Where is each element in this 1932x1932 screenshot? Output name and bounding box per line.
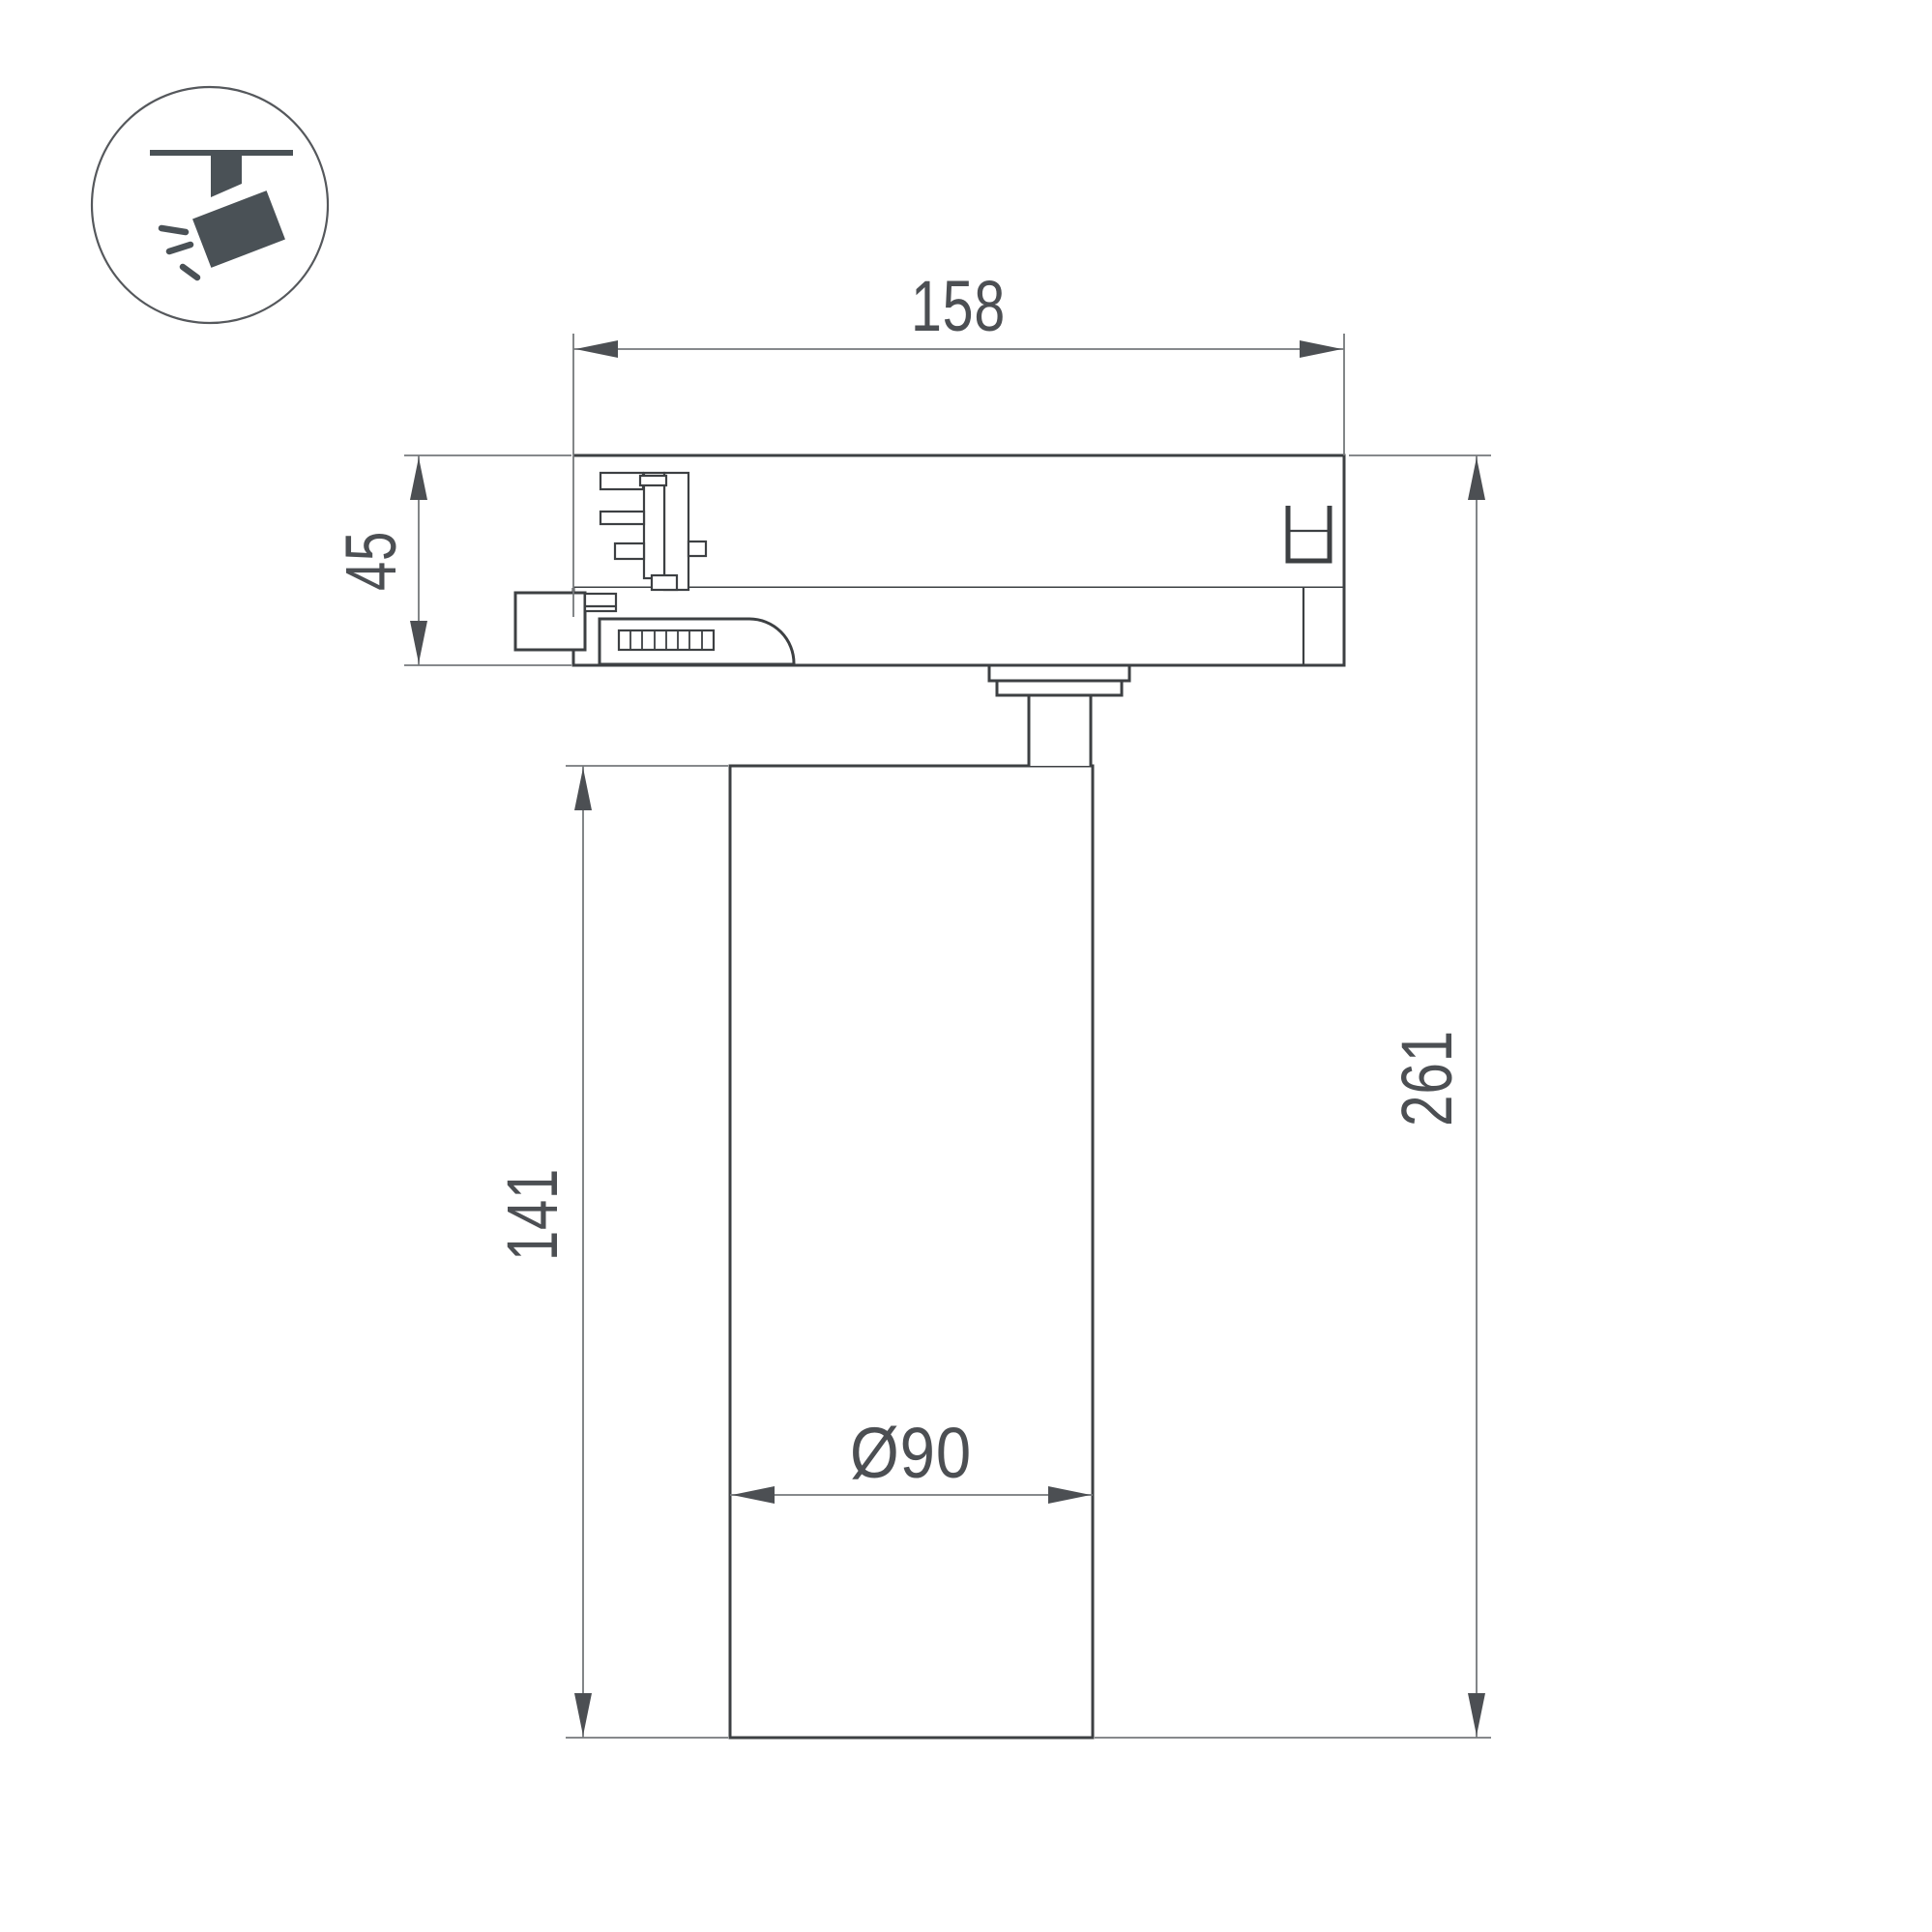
swivel-stem (1029, 695, 1091, 766)
dimension-total-height: 261 (1349, 455, 1491, 1738)
dimension-label-total-height: 261 (1387, 1030, 1467, 1127)
arrow-up-icon (1468, 457, 1485, 500)
arrow-right-icon (1300, 340, 1342, 358)
arrow-down-icon (410, 621, 427, 663)
arrow-left-icon (575, 340, 618, 358)
track-light-icon (92, 87, 328, 323)
arrow-down-icon (1468, 1693, 1485, 1736)
lamp-body-side-view (730, 665, 1129, 1738)
dimension-label-body-height: 141 (492, 1168, 572, 1261)
icon-track-bar (150, 150, 293, 156)
swivel-flange-lower (997, 681, 1122, 695)
icon-circle (92, 87, 328, 323)
dimension-label-body-diameter: Ø90 (850, 1413, 972, 1493)
technical-drawing: 158 45 141 261 (0, 0, 1932, 1932)
dimension-label-adapter-width: 158 (911, 266, 1006, 346)
dimension-body-height: 141 (492, 766, 728, 1738)
drawing-page: 158 45 141 261 (0, 0, 1932, 1932)
dimension-label-adapter-height: 45 (331, 531, 411, 591)
arrow-up-icon (574, 768, 592, 810)
arrow-up-icon (410, 457, 427, 500)
selector-lever (600, 619, 794, 664)
swivel-flange-upper (989, 665, 1129, 681)
track-adapter-side-view (515, 455, 1344, 665)
lamp-cylinder (730, 766, 1093, 1738)
arrow-down-icon (574, 1693, 592, 1736)
